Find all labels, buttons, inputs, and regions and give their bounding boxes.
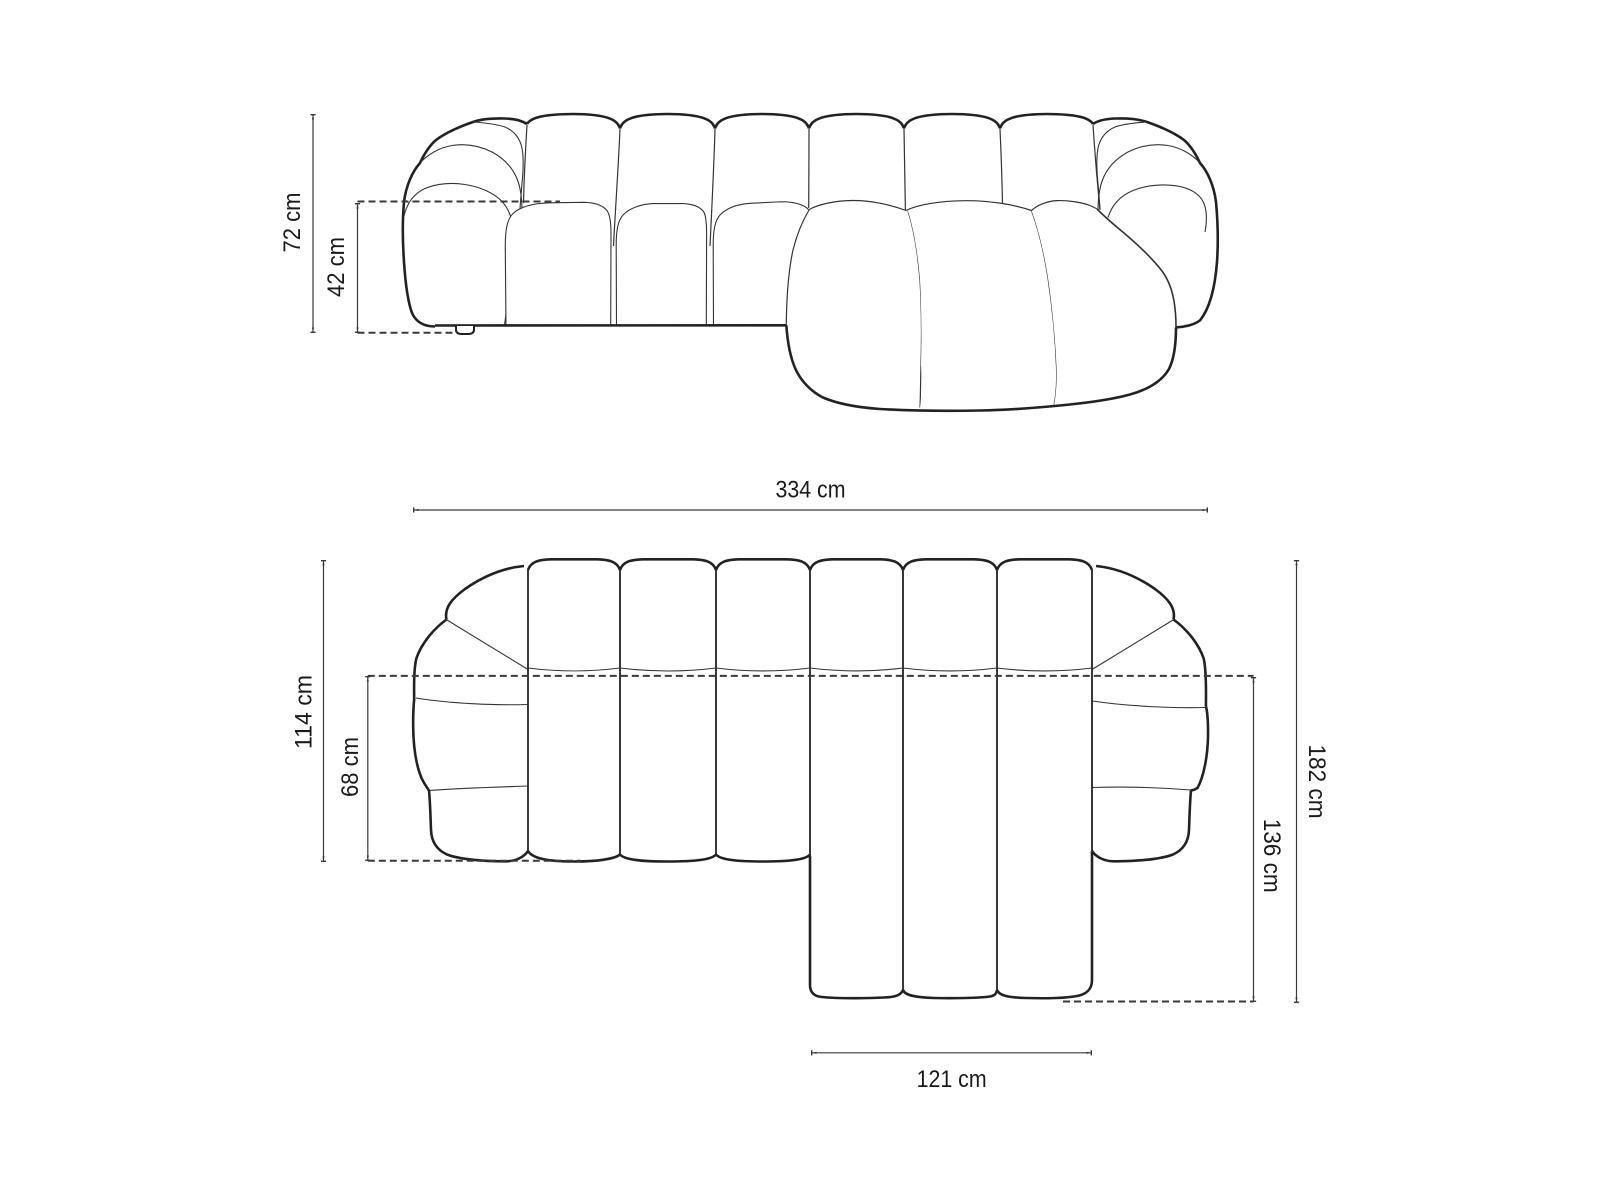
svg-text:136 cm: 136 cm [1258, 819, 1285, 893]
svg-text:121 cm: 121 cm [917, 1066, 987, 1093]
svg-text:114 cm: 114 cm [291, 675, 318, 749]
svg-text:72 cm: 72 cm [279, 193, 306, 253]
svg-text:182 cm: 182 cm [1303, 745, 1330, 819]
svg-text:334 cm: 334 cm [776, 477, 846, 504]
svg-text:42 cm: 42 cm [323, 237, 350, 297]
svg-text:68 cm: 68 cm [337, 737, 364, 797]
